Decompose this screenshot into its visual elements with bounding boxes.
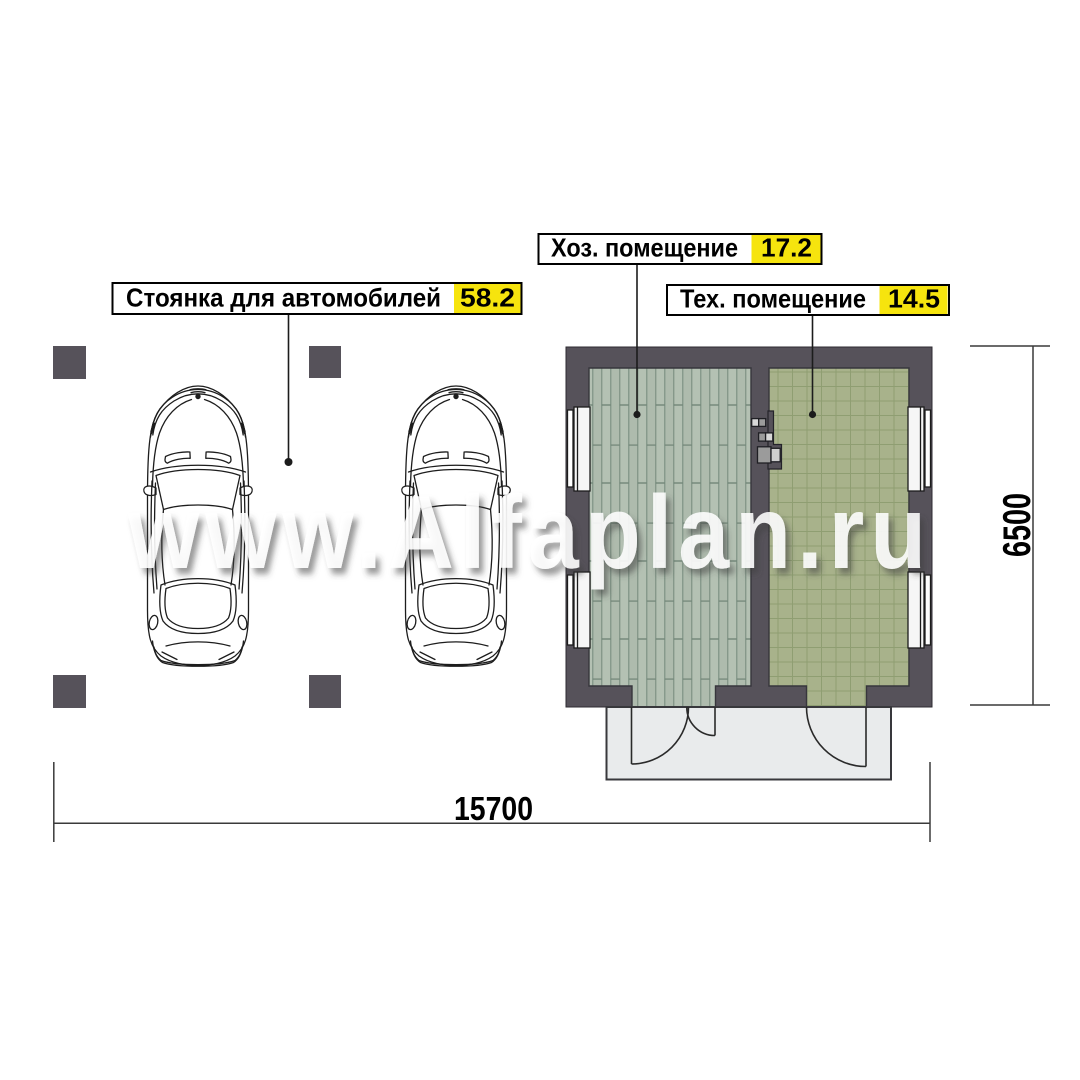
- svg-text:Хоз. помещение: Хоз. помещение: [551, 233, 738, 263]
- svg-text:Стоянка для автомобилей: Стоянка для автомобилей: [126, 283, 441, 313]
- svg-text:58.2: 58.2: [460, 283, 515, 313]
- svg-text:17.2: 17.2: [761, 233, 812, 263]
- svg-text:14.5: 14.5: [888, 284, 940, 314]
- svg-text:15700: 15700: [454, 790, 533, 828]
- svg-text:Тех. помещение: Тех. помещение: [680, 284, 866, 314]
- svg-text:6500: 6500: [996, 493, 1039, 557]
